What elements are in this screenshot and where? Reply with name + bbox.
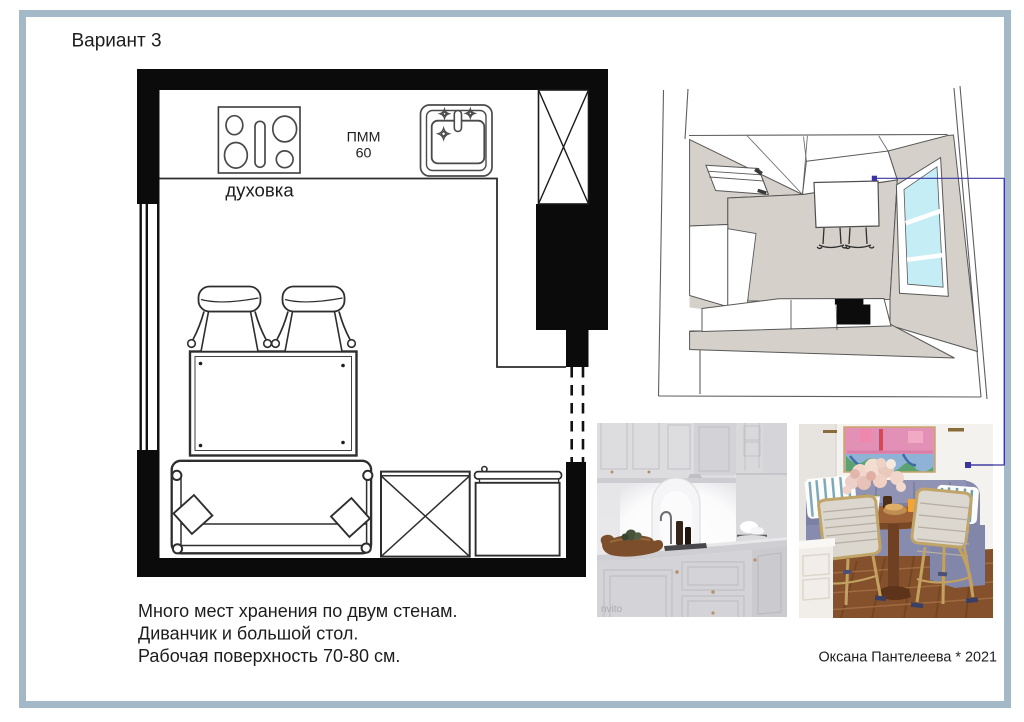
svg-text:Диванчик и большой стол.: Диванчик и большой стол. [138,624,358,644]
svg-text:духовка: духовка [225,180,294,201]
svg-text:ПММ: ПММ [347,130,381,146]
svg-text:nvito: nvito [601,604,623,615]
svg-text:60: 60 [356,146,372,162]
svg-text:Много мест хранения по двум ст: Много мест хранения по двум стенам. [138,601,457,621]
svg-text:Рабочая поверхность 70-80 см.: Рабочая поверхность 70-80 см. [138,646,400,666]
svg-text:Оксана Пантелеева * 2021: Оксана Пантелеева * 2021 [818,650,997,666]
svg-text:Вариант 3: Вариант 3 [72,31,162,52]
